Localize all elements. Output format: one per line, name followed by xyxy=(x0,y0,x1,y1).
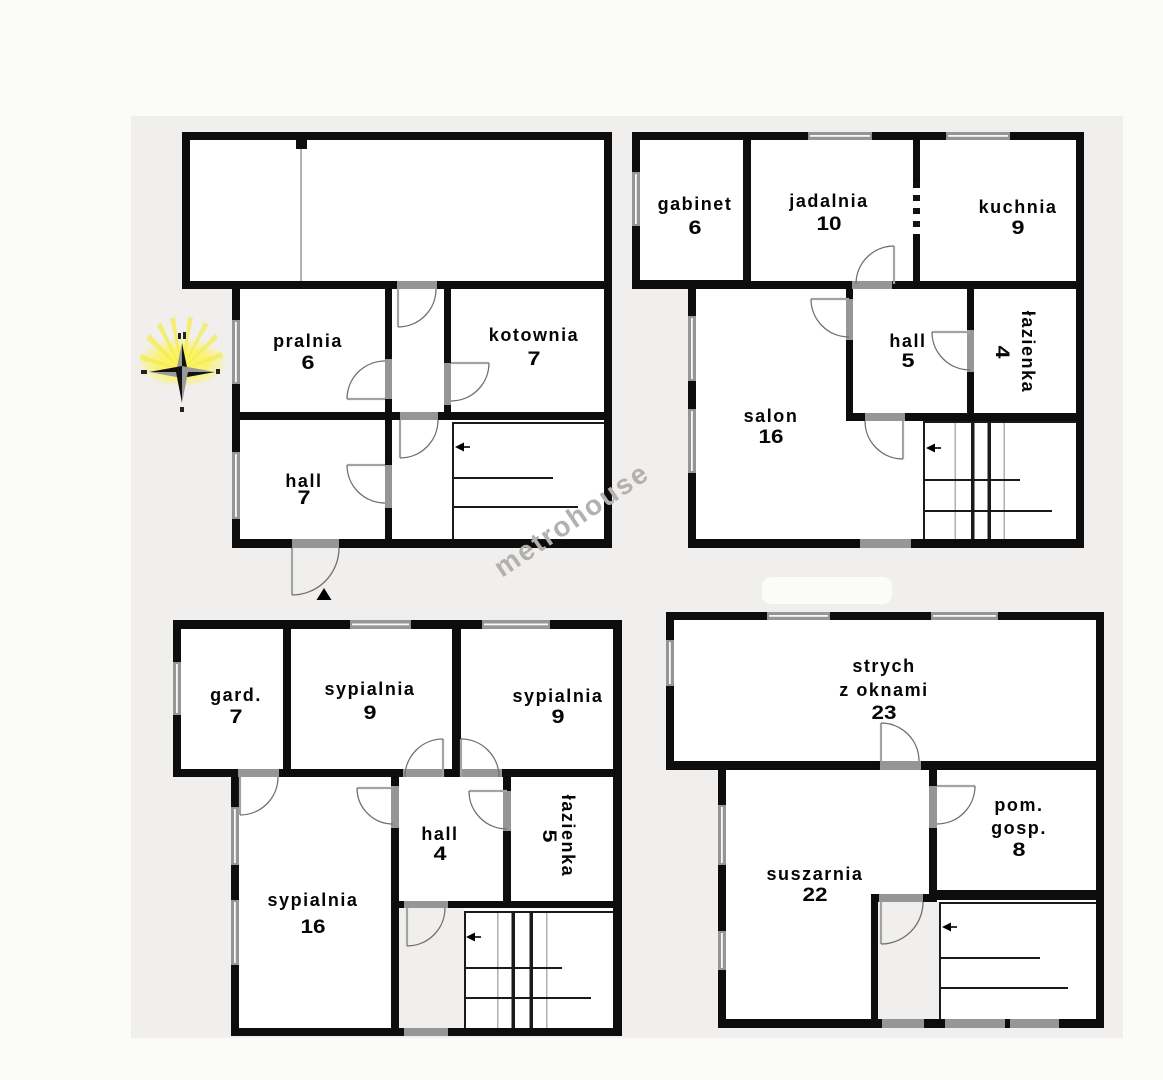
svg-text:16: 16 xyxy=(301,917,326,938)
svg-text:hall: hall xyxy=(421,824,458,844)
svg-text:strych: strych xyxy=(852,656,915,676)
svg-text:hall: hall xyxy=(889,331,926,351)
svg-text:9: 9 xyxy=(552,707,565,728)
svg-text:łazienka: łazienka xyxy=(1018,311,1038,393)
svg-text:jadalnia: jadalnia xyxy=(788,191,868,211)
svg-text:gosp.: gosp. xyxy=(991,818,1047,838)
svg-text:4: 4 xyxy=(991,346,1012,360)
svg-text:23: 23 xyxy=(872,703,897,724)
svg-text:pom.: pom. xyxy=(994,795,1043,815)
svg-text:suszarnia: suszarnia xyxy=(767,864,864,884)
svg-text:łazienka: łazienka xyxy=(558,795,578,877)
svg-text:6: 6 xyxy=(689,218,702,239)
svg-text:pralnia: pralnia xyxy=(273,331,343,351)
svg-text:10: 10 xyxy=(817,214,842,235)
svg-text:7: 7 xyxy=(230,707,243,728)
svg-text:5: 5 xyxy=(902,351,916,372)
svg-text:5: 5 xyxy=(538,830,559,844)
svg-text:7: 7 xyxy=(298,488,311,509)
svg-text:gabinet: gabinet xyxy=(658,194,733,214)
svg-text:9: 9 xyxy=(364,703,377,724)
svg-text:22: 22 xyxy=(803,885,828,906)
svg-text:7: 7 xyxy=(528,349,541,370)
svg-text:16: 16 xyxy=(759,427,784,448)
svg-text:gard.: gard. xyxy=(210,685,262,705)
svg-text:6: 6 xyxy=(302,353,315,374)
svg-text:8: 8 xyxy=(1013,840,1026,861)
svg-text:9: 9 xyxy=(1012,218,1025,239)
svg-text:salon: salon xyxy=(744,406,799,426)
svg-text:z oknami: z oknami xyxy=(839,680,928,700)
svg-text:sypialnia: sypialnia xyxy=(268,890,359,910)
svg-text:sypialnia: sypialnia xyxy=(325,679,416,699)
svg-text:4: 4 xyxy=(434,844,448,865)
svg-text:kotownia: kotownia xyxy=(489,325,579,345)
svg-text:sypialnia: sypialnia xyxy=(513,686,604,706)
svg-text:kuchnia: kuchnia xyxy=(979,197,1058,217)
